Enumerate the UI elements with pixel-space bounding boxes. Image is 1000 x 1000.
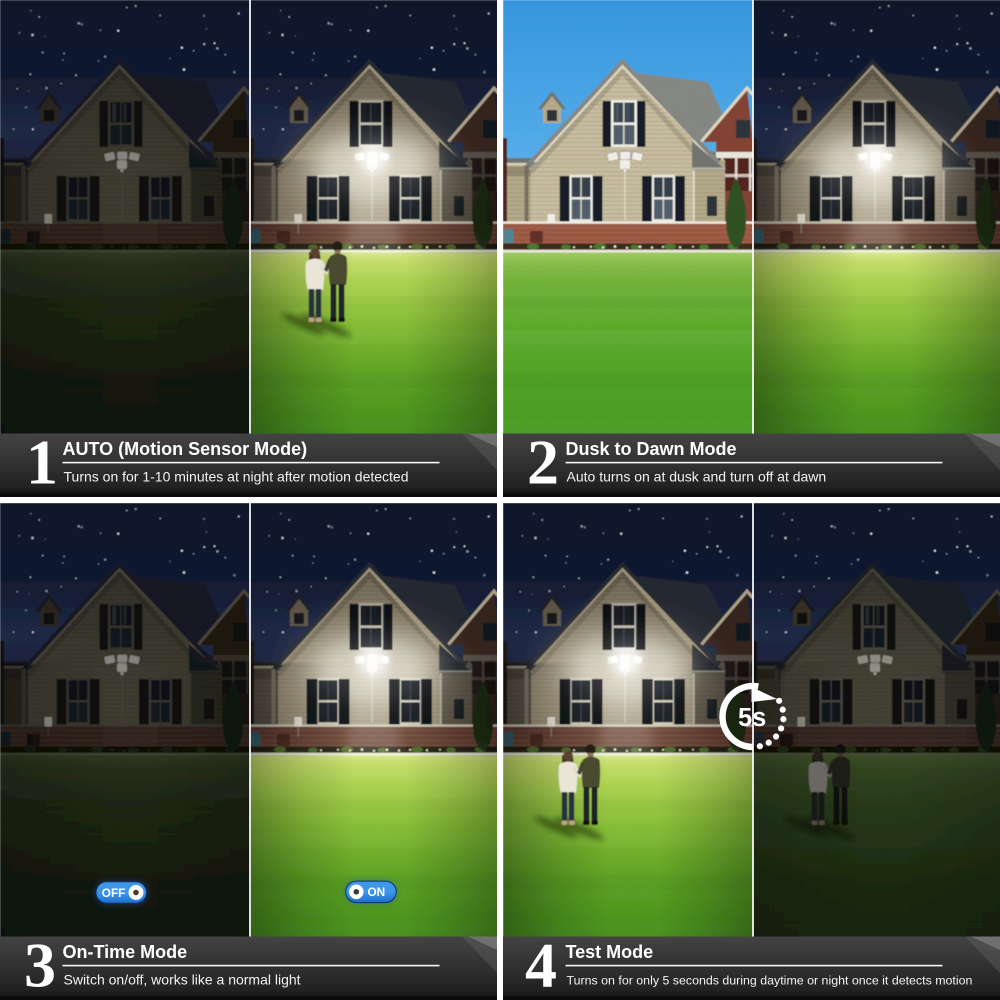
svg-text:Switch on/off, works like a no: Switch on/off, works like a normal light [64,972,301,988]
svg-text:On-Time Mode: On-Time Mode [63,942,188,962]
svg-text:3: 3 [24,930,56,1000]
svg-text:Dusk to Dawn Mode: Dusk to Dawn Mode [566,439,737,459]
svg-text:Auto turns on at dusk and turn: Auto turns on at dusk and turn off at da… [567,469,827,485]
svg-text:Test Mode: Test Mode [566,942,654,962]
svg-text:AUTO (Motion Sensor Mode): AUTO (Motion Sensor Mode) [63,439,308,459]
svg-text:2: 2 [527,427,559,498]
svg-text:4: 4 [525,930,557,1000]
svg-text:Turns on for 1-10 minutes at n: Turns on for 1-10 minutes at night after… [64,469,409,485]
svg-text:1: 1 [26,427,58,498]
svg-text:Turns on for only 5 seconds du: Turns on for only 5 seconds during dayti… [567,974,973,988]
